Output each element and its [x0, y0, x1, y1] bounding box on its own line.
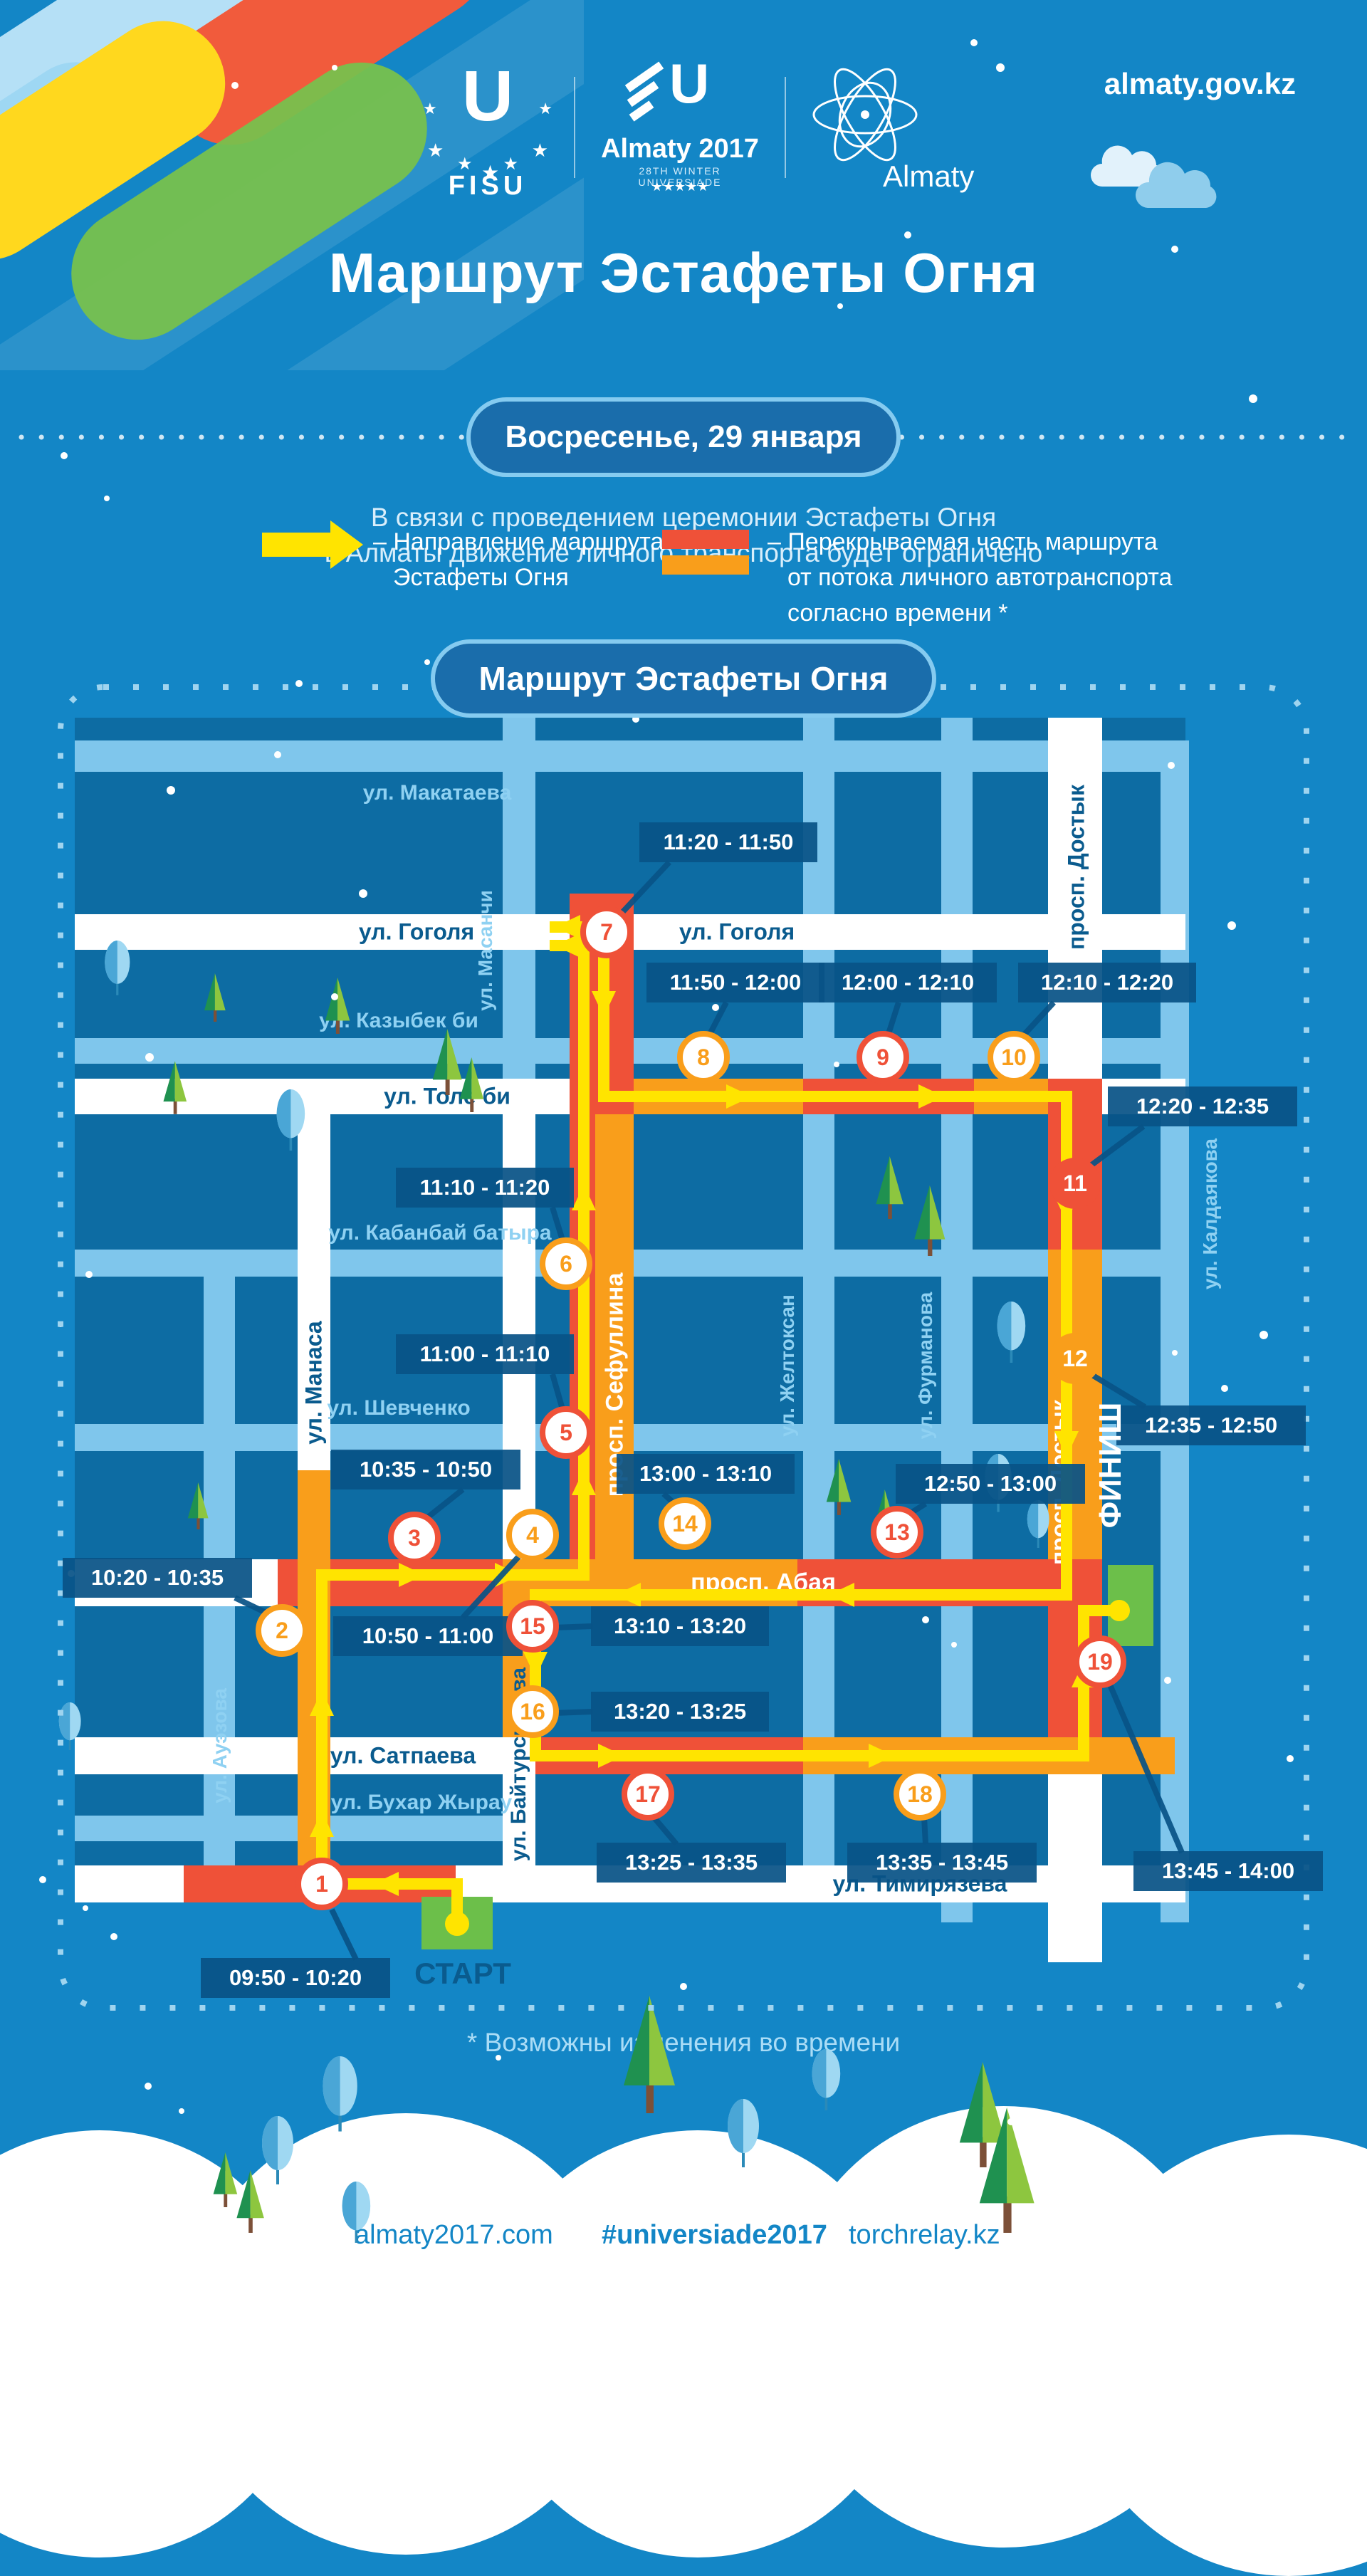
snowflake [104, 496, 110, 501]
legend-closure-line1: – Перекрываемая часть маршрута [768, 528, 1158, 556]
fisu-star-icon: ★ [532, 140, 548, 162]
map-title-badge: Маршрут Эстафеты Огня [431, 639, 936, 718]
almaty-city-label: Almaty [883, 159, 974, 194]
street-label-18: просп. Достык [1064, 785, 1090, 950]
time-label-15: 13:10 - 13:20 [591, 1606, 769, 1646]
route-point-13: 13 [871, 1506, 923, 1559]
route-point-6: 6 [540, 1237, 592, 1290]
ribbon-lightblue [0, 0, 269, 169]
street-label-1: ул. Гоголя [359, 919, 474, 946]
start-label: СТАРТ [414, 1957, 511, 1991]
closure-satpaeva-seg17 [535, 1737, 803, 1774]
snowflake [970, 39, 978, 46]
snowflake [1221, 1385, 1228, 1392]
time-label-5: 11:00 - 11:10 [396, 1334, 574, 1374]
route-point-19: 19 [1074, 1635, 1126, 1688]
time-label-10: 12:10 - 12:20 [1018, 963, 1196, 1002]
time-label-12: 12:35 - 12:50 [1116, 1405, 1306, 1445]
route-point-9: 9 [857, 1031, 909, 1084]
closure-tole-bi-seg8 [634, 1079, 803, 1114]
street-label-13: ул. Масанчи [474, 890, 497, 1011]
time-label-17: 13:25 - 13:35 [597, 1843, 786, 1883]
route-point-8: 8 [677, 1031, 730, 1084]
snowflake [179, 2108, 184, 2114]
closure-manasa-seg [298, 1470, 330, 1865]
legend-red-bar-icon [662, 530, 749, 549]
poster: ★ ★ ★ ★ ★ ★ ★ U FISU U Almaty 2017 28TH … [0, 0, 1367, 2291]
snowflake [1249, 394, 1257, 403]
route-point-17: 17 [622, 1768, 674, 1821]
snowflake [332, 65, 337, 70]
route-point-7: 7 [580, 906, 633, 958]
page-title: Маршрут Эстафеты Огня [0, 241, 1367, 305]
almaty2017-wing-icon [624, 68, 666, 132]
time-label-16: 13:20 - 13:25 [591, 1692, 769, 1732]
fisu-label: FISU [421, 171, 554, 201]
street-label-0: ул. Макатаева [363, 781, 512, 805]
route-point-15: 15 [506, 1600, 559, 1653]
footer-link-universiade-hashtag[interactable]: #universiade2017 [602, 2220, 827, 2251]
street-label-16: ул. Желтоксан [776, 1294, 799, 1437]
snowflake [110, 1933, 117, 1940]
legend-direction-arrow-tip [330, 520, 363, 569]
snowflake [61, 452, 68, 459]
snowflake [680, 1983, 687, 1990]
time-label-8: 11:50 - 12:00 [646, 963, 824, 1002]
street-label-2: ул. Гоголя [679, 919, 795, 946]
street-ul-zheltoksan [803, 718, 834, 1902]
snowflake [904, 231, 911, 239]
almaty2017-stars: ★★★★★ [598, 179, 762, 194]
fisu-logo: ★ ★ ★ ★ ★ ★ ★ U FISU [421, 63, 554, 198]
snowflake [83, 1905, 88, 1911]
logo-divider [785, 77, 786, 178]
gov-site-link[interactable]: almaty.gov.kz [1061, 67, 1296, 101]
time-label-4: 10:50 - 11:00 [333, 1616, 523, 1656]
almaty2017-u-glyph: U [669, 51, 709, 116]
legend-closure-line3: согласно времени * [787, 600, 1007, 627]
snowflake [1287, 1755, 1294, 1762]
closure-abaya-east [797, 1559, 1102, 1606]
street-label-11: ул. Ауэзова [209, 1688, 231, 1803]
closure-tole-bi-seg9 [803, 1079, 974, 1114]
ribbon-green [46, 37, 452, 365]
street-label-6: ул. Шевченко [327, 1396, 470, 1420]
legend-direction-line1: – Направление маршрута [373, 528, 664, 556]
time-label-1: 09:50 - 10:20 [201, 1958, 390, 1998]
route-point-10: 10 [988, 1031, 1040, 1084]
time-label-6: 11:10 - 11:20 [396, 1168, 574, 1208]
legend-orange-bar-icon [662, 555, 749, 575]
route-point-4: 4 [506, 1509, 559, 1561]
route-point-14: 14 [659, 1497, 711, 1550]
route-point-18: 18 [894, 1768, 946, 1821]
legend-closure-line2: от потока личного автотранспорта [787, 564, 1172, 592]
finish-marker-box [1108, 1565, 1153, 1646]
oval-tree-icon [810, 2049, 843, 2110]
street-label-9: ул. Бухар Жырау [331, 1791, 513, 1815]
closure-satpaeva-seg18 [803, 1737, 1175, 1774]
street-label-5: ул. Кабанбай батыра [328, 1221, 551, 1245]
time-label-9: 12:00 - 12:10 [819, 963, 997, 1002]
snowflake [145, 2083, 152, 2090]
route-point-5: 5 [540, 1406, 592, 1459]
footer-link-almaty2017[interactable]: almaty2017.com [355, 2220, 553, 2251]
time-label-13: 12:50 - 13:00 [896, 1464, 1085, 1504]
fisu-u-glyph: U [421, 56, 554, 137]
street-label-8: ул. Сатпаева [330, 1743, 476, 1769]
time-label-14: 13:00 - 13:10 [617, 1454, 795, 1494]
snowflake [1227, 921, 1236, 930]
route-point-11: 11 [1049, 1158, 1101, 1209]
street-label-4: ул. Толе би [384, 1084, 510, 1110]
snowflake [424, 659, 430, 665]
time-label-7: 11:20 - 11:50 [639, 822, 817, 862]
route-point-16: 16 [506, 1685, 559, 1738]
time-label-3: 10:35 - 10:50 [331, 1450, 520, 1489]
street-label-3: ул. Казыбек би [319, 1009, 478, 1033]
time-label-19: 13:45 - 14:00 [1133, 1851, 1323, 1891]
footnote: * Возможны изменения во времени [0, 2028, 1367, 2058]
almaty2017-name: Almaty 2017 [598, 134, 762, 164]
route-point-12: 12 [1049, 1333, 1101, 1384]
legend-direction-line2: Эстафеты Огня [393, 564, 569, 592]
snowflake [39, 1876, 46, 1883]
finish-label: ФИНИШ [1093, 1403, 1128, 1529]
street-label-12: ул. Манаса [301, 1321, 328, 1444]
logo-divider [574, 77, 575, 178]
snowflake [58, 1321, 63, 1327]
snowflake [231, 82, 239, 89]
date-badge: Восресенье, 29 января [466, 397, 901, 477]
street-label-7: просп. Абая [691, 1569, 836, 1597]
start-marker-box [421, 1897, 493, 1949]
snowflake [1259, 1331, 1268, 1339]
street-label-20: ул. Калдаякова [1199, 1138, 1222, 1289]
time-label-2: 10:20 - 10:35 [63, 1558, 252, 1598]
street-label-17: ул. Фурманова [914, 1292, 937, 1440]
time-label-11: 12:20 - 12:35 [1108, 1087, 1297, 1126]
almaty-city-logo: Almaty [790, 47, 975, 197]
intro-line-1: В связи с проведением церемонии Эстафеты… [0, 503, 1367, 533]
street-ul-makataeva [75, 740, 1185, 772]
snowflake [295, 680, 303, 687]
legend-direction-arrow-icon [262, 533, 330, 557]
footer-link-torchrelay[interactable]: torchrelay.kz [849, 2220, 1000, 2251]
time-label-18: 13:35 - 13:45 [847, 1843, 1037, 1883]
fisu-star-icon: ★ [427, 140, 444, 162]
snowflake [996, 63, 1005, 72]
street-ul-bukhar-zhyrau [75, 1816, 503, 1841]
route-point-1: 1 [295, 1858, 348, 1910]
route-point-3: 3 [388, 1512, 441, 1564]
route-point-2: 2 [256, 1604, 308, 1657]
